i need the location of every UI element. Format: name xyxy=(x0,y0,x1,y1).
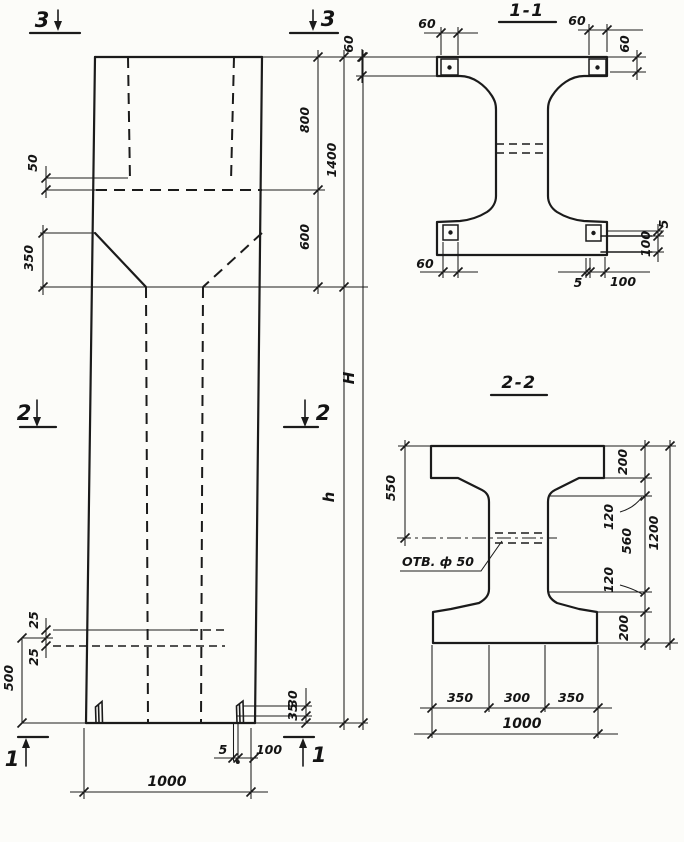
dim-300-middle: 300 xyxy=(504,690,530,705)
section-mark-1-left: 1 xyxy=(5,737,48,771)
dim-1400-label: 1400 xyxy=(324,142,339,177)
dim-5-bottom: 5 xyxy=(574,275,583,290)
section-mark-3-left: 3 xyxy=(30,8,80,33)
dim-350-left: 350 xyxy=(447,690,473,705)
elevation-view: 3 3 2 2 1 1 xyxy=(1,7,368,799)
dim-1200-label: 1200 xyxy=(646,515,661,550)
mark-2-left-label: 2 xyxy=(17,401,32,425)
mark-3-right-label: 3 xyxy=(321,7,336,31)
section-2-2-dims: 550 200 120 560 120 200 1200 350 300 350… xyxy=(383,440,678,739)
dim-1000-bottom: 1000 xyxy=(503,716,542,732)
foot-left xyxy=(96,702,103,724)
foot-right xyxy=(237,701,244,723)
dim-60-top-left: 60 xyxy=(418,16,436,31)
dim-500-label: 500 xyxy=(1,665,16,691)
drawing-sheet: 3 3 2 2 1 1 xyxy=(0,0,684,842)
column-outline xyxy=(46,57,262,764)
section-mark-3-right: 3 xyxy=(290,7,338,33)
section-mark-2-right: 2 xyxy=(284,400,330,427)
dim-560-label: 560 xyxy=(619,528,634,554)
section-2-2-title: 2-2 xyxy=(501,373,536,393)
section-mark-1-right: 1 xyxy=(284,737,326,767)
dim-60-top-right: 60 xyxy=(568,13,586,28)
mark-1-left-label: 1 xyxy=(5,747,20,771)
mark-3-left-label: 3 xyxy=(35,8,50,32)
section-2-2-view: 2-2 ОТВ. ф 50 550 200 120 560 120 200 xyxy=(383,373,678,739)
hole-diameter-label: ОТВ. ф 50 xyxy=(402,554,474,569)
dim-800-label: 800 xyxy=(297,107,312,133)
dim-1000-label: 1000 xyxy=(148,774,187,790)
section-mark-2-left: 2 xyxy=(17,400,56,427)
dim-600-label: 600 xyxy=(297,224,312,250)
section-1-1-view: 1-1 60 60 60 60 xyxy=(341,1,671,290)
dim-50-label: 50 xyxy=(25,154,40,172)
elevation-dims-bottom: 30 35 5 100 1000 xyxy=(70,688,312,799)
dim-25-upper-label: 25 xyxy=(26,611,41,629)
dim-5-plate-label: 5 xyxy=(219,742,228,757)
column-technical-drawing: 3 3 2 2 1 1 xyxy=(0,0,684,842)
dim-120-upper: 120 xyxy=(601,504,616,530)
mark-1-right-label: 1 xyxy=(312,743,327,767)
dim-5-right: 5 xyxy=(656,219,671,228)
dim-60-left-edge: 60 xyxy=(341,35,356,53)
dim-60-right-edge: 60 xyxy=(617,35,632,53)
embedded-plates xyxy=(441,59,652,252)
dim-350-right: 350 xyxy=(558,690,584,705)
dim-H-label: H xyxy=(340,371,358,384)
dim-200-top: 200 xyxy=(615,449,630,475)
dim-100-bottom: 100 xyxy=(610,274,636,289)
web-hole: ОТВ. ф 50 xyxy=(397,533,557,571)
dim-h-label: h xyxy=(320,492,338,503)
section-1-1-outline xyxy=(437,57,607,255)
dim-35-label: 35 xyxy=(285,703,300,721)
dim-100-plate-label: 100 xyxy=(256,742,282,757)
dim-100-right: 100 xyxy=(638,231,653,257)
section-1-1-title: 1-1 xyxy=(509,1,544,21)
dim-120-lower: 120 xyxy=(601,567,616,593)
mark-2-right-label: 2 xyxy=(316,401,331,425)
elevation-dims-left: 50 350 25 25 500 xyxy=(1,154,368,727)
dim-350-label: 350 xyxy=(21,245,36,271)
elevation-dims-right: 800 600 1400 h H xyxy=(255,50,368,730)
section-1-1-dims: 60 60 60 60 60 5 100 5 100 xyxy=(341,13,671,290)
dim-60-bottom-left: 60 xyxy=(416,256,434,271)
dim-25-lower-label: 25 xyxy=(26,648,41,666)
dim-200-bottom: 200 xyxy=(616,615,631,641)
section-2-2-outline xyxy=(431,446,604,643)
dim-550-label: 550 xyxy=(383,475,398,501)
